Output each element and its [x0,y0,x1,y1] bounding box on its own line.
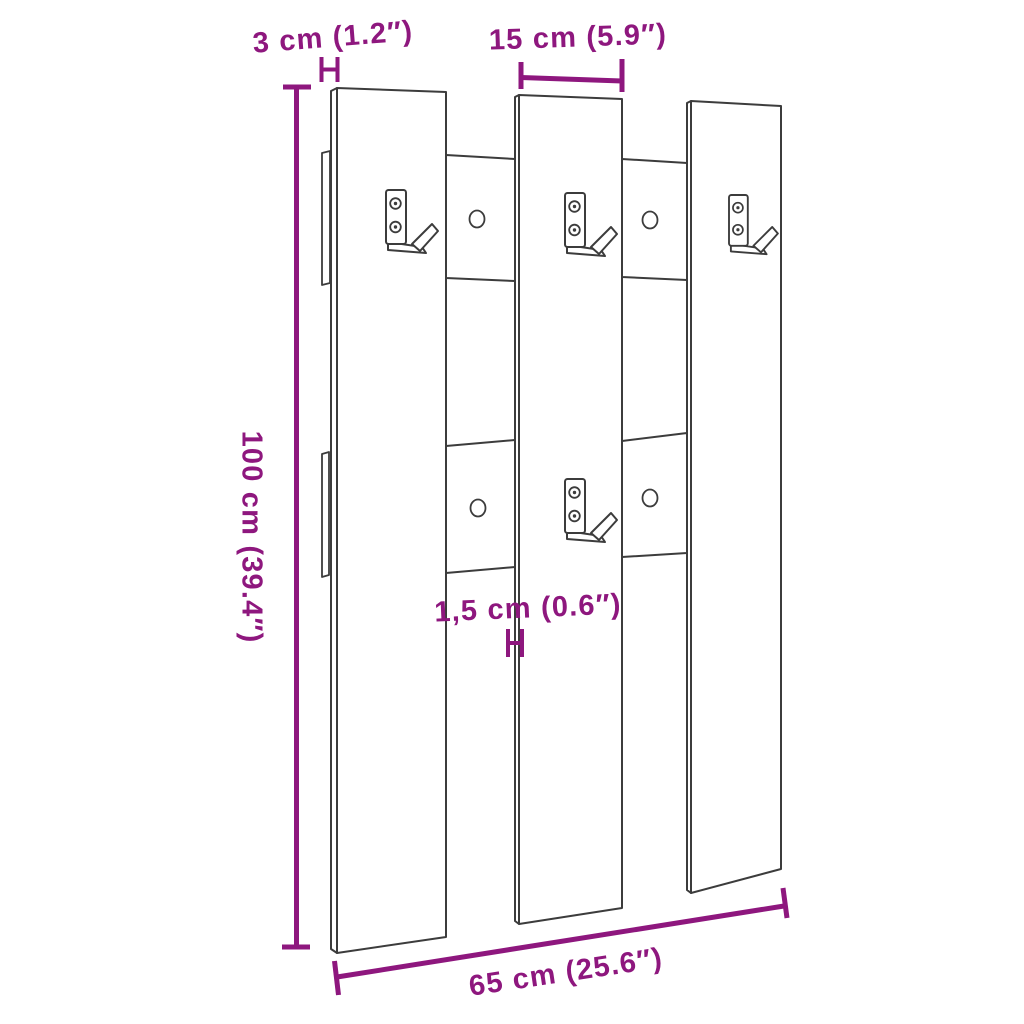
screw-hole [643,212,658,229]
screw-hole [470,211,485,228]
coat-rack-line-art [0,0,1024,1024]
hook-panel-width-dimension-line [521,59,622,92]
batten-end-slivers [322,151,330,577]
dimension-diagram: 3 cm (1.2″) 15 cm (5.9″) 100 cm (39.4″) … [0,0,1024,1024]
hook-panel-width-dimension-label: 15 cm (5.9″) [488,20,667,55]
height-dimension-line [282,87,311,947]
screw-hole [643,490,658,507]
depth-dimension-bracket [322,57,338,82]
height-dimension-label: 100 cm (39.4″) [237,431,266,644]
screw-hole [471,500,486,517]
